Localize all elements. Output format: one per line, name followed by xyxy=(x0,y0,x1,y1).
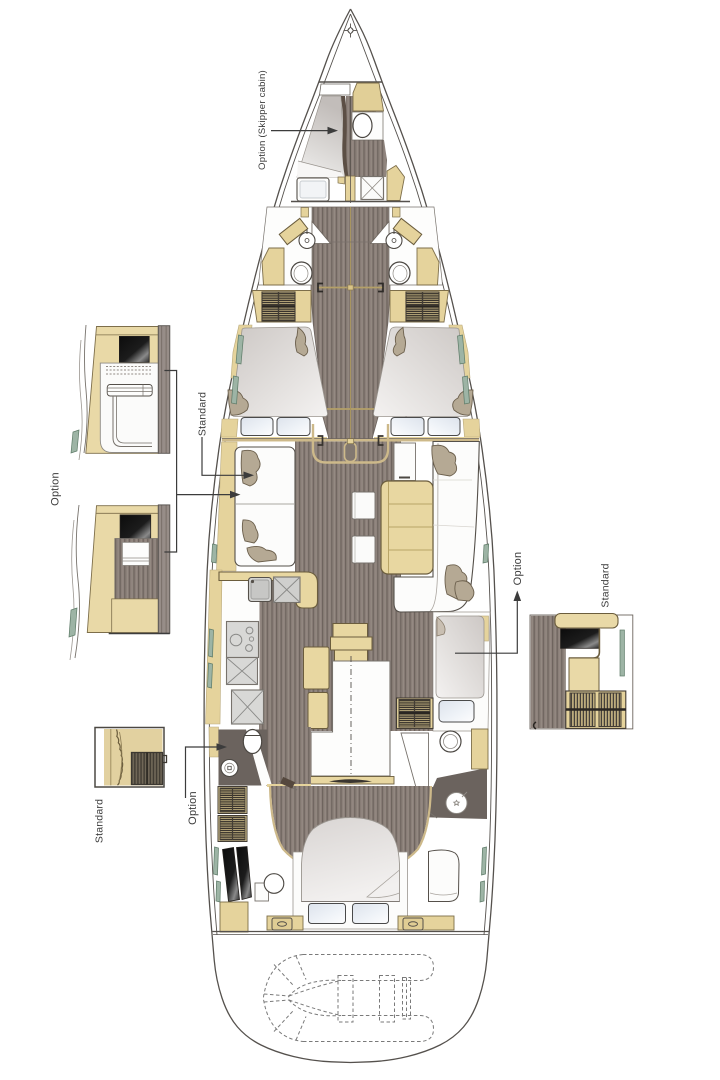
svg-text:Option: Option xyxy=(187,791,199,825)
svg-text:Standard: Standard xyxy=(197,392,209,436)
svg-text:Standard: Standard xyxy=(600,563,612,607)
svg-text:Standard: Standard xyxy=(94,799,106,843)
svg-text:Option (Skipper cabin): Option (Skipper cabin) xyxy=(257,70,268,170)
svg-text:Option: Option xyxy=(50,472,62,506)
svg-text:Option: Option xyxy=(512,552,524,586)
